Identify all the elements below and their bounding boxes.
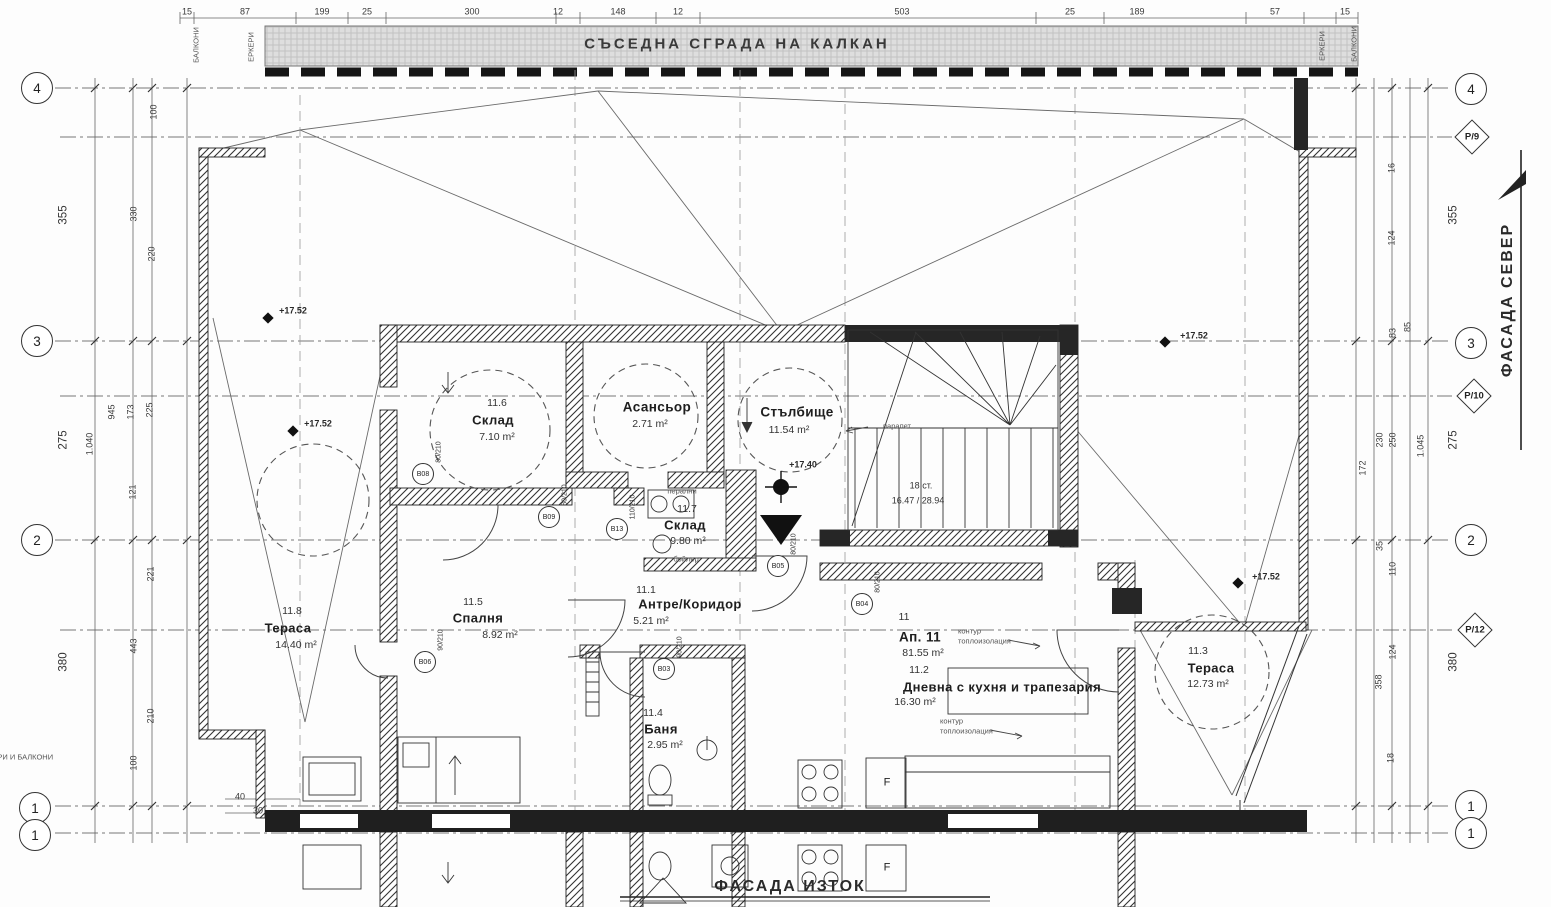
dimension-label: 173 <box>127 404 136 419</box>
annotation-insulation-1b: топлоизолация <box>958 637 1011 646</box>
room-terrace-west-num: 11.8 <box>282 606 302 617</box>
room-living-area: 16.30 m² <box>894 697 935 708</box>
grid-bubble-2-right: 2 <box>1455 524 1487 556</box>
apartment-area: 81.55 m² <box>902 648 943 659</box>
dimension-label: 189 <box>1129 8 1144 17</box>
dimension-label: 443 <box>130 638 139 653</box>
dimension-label: 275 <box>58 430 70 449</box>
fridge-label: F <box>884 778 891 789</box>
annotation-balconies-left: БАЛКОНИ <box>192 27 200 63</box>
dimension-label: 380 <box>1448 652 1460 671</box>
room-living-name: Дневна с кухня и трапезария <box>903 681 1101 694</box>
room-terrace-east-name: Тераса <box>1188 662 1235 675</box>
door-size-label: 80/210 <box>562 484 569 505</box>
apartment-sub-num: 11 <box>899 612 910 623</box>
annotation-balconies-right: БАЛКОНИ <box>1350 26 1358 62</box>
room-bedroom-num: 11.5 <box>463 597 483 608</box>
dimension-label: 121 <box>129 484 138 499</box>
stairs-rail-note: парапет <box>883 422 911 430</box>
door-tag-В06: В06 <box>414 651 436 673</box>
grid-bubble-1b-right: 1 <box>1455 817 1487 849</box>
room-terrace-east-num: 11.3 <box>1188 646 1208 657</box>
dimension-label: 12 <box>553 8 563 17</box>
room-hall-area: 5.21 m² <box>633 616 669 627</box>
dimension-label: 57 <box>1270 8 1280 17</box>
dimension-label: 124 <box>1389 644 1398 659</box>
door-size-label: 90/210 <box>438 629 445 650</box>
room-bath-num: 11.4 <box>643 708 663 719</box>
grid-bubble-2-left: 2 <box>21 524 53 556</box>
grid-bubble-4-left: 4 <box>21 72 53 104</box>
room-terrace-east-area: 12.73 m² <box>1187 679 1228 690</box>
dimension-label: 87 <box>240 8 250 17</box>
dimension-label: 35 <box>1376 541 1385 551</box>
fridge-label: F <box>884 863 891 874</box>
grid-bubble-1b-left: 1 <box>19 819 51 851</box>
grid-bubble-4-right: 4 <box>1455 73 1487 105</box>
dimension-label: 100 <box>150 104 159 119</box>
dimension-label: 40 <box>235 793 245 802</box>
banner-title: СЪСЕДНА СГРАДА НА КАЛКАН <box>584 37 889 52</box>
dimension-label: 210 <box>147 708 156 723</box>
note-boiler: бойлер <box>673 555 698 563</box>
room-terrace-west-name: Тераса <box>265 622 312 635</box>
room-storage-b-name: Склад <box>664 519 706 532</box>
room-storage-a-num: 11.6 <box>487 398 507 409</box>
door-tag-В09: В09 <box>538 506 560 528</box>
apartment-label: Ап. 11 <box>899 630 941 644</box>
dimension-label: 25 <box>1065 8 1075 17</box>
door-tag-В13: В13 <box>606 518 628 540</box>
dimension-label: 1.045 <box>1417 435 1426 458</box>
room-terrace-west-area: 14.40 m² <box>275 640 316 651</box>
room-stairwell-name: Стълбище <box>760 405 833 419</box>
door-tag-В08: В08 <box>412 463 434 485</box>
dimension-label: 83 <box>1389 328 1398 338</box>
axis-diamond-p9-label: P/9 <box>1465 132 1479 142</box>
room-bath-area: 2.95 m² <box>647 740 683 751</box>
room-living-num: 11.2 <box>909 665 929 676</box>
room-bath-name: Баня <box>644 723 678 736</box>
dimension-label: 25 <box>362 8 372 17</box>
label-overlay: СЪСЕДНА СГРАДА НА КАЛКАН ФАСАДА СЕВЕР ФА… <box>0 0 1551 907</box>
dimension-label: 380 <box>58 652 70 671</box>
dimension-label: 110 <box>1389 562 1398 576</box>
door-size-label: 80/210 <box>875 571 882 592</box>
room-stairwell-area: 11.54 m² <box>769 425 810 436</box>
dimension-label: 30 <box>253 807 263 816</box>
axis-diamond-p10-label: P/10 <box>1464 391 1484 401</box>
room-storage-b-num: 11.7 <box>677 504 697 515</box>
dimension-label: 172 <box>1359 460 1368 475</box>
level-mark: +17.40 <box>789 461 817 470</box>
note-washers: перални <box>667 487 696 495</box>
facade-east-label: ФАСАДА ИЗТОК <box>714 879 866 895</box>
dimension-label: 275 <box>1448 430 1460 449</box>
dimension-label: 330 <box>130 206 139 221</box>
room-elevator-name: Асансьор <box>623 400 691 414</box>
dimension-label: 12 <box>673 8 683 17</box>
level-mark: +17.52 <box>279 307 307 316</box>
room-storage-a-area: 7.10 m² <box>479 432 515 443</box>
room-storage-a-name: Склад <box>472 414 514 427</box>
door-size-label: 80/210 <box>791 533 798 554</box>
annotation-insulation-2b: топлоизолация <box>940 727 993 736</box>
dimension-label: 945 <box>108 404 117 419</box>
floor-plan-sheet: СЪСЕДНА СГРАДА НА КАЛКАН ФАСАДА СЕВЕР ФА… <box>0 0 1551 907</box>
dimension-label: 15 <box>182 8 192 17</box>
dimension-label: 18 <box>1387 753 1396 763</box>
room-storage-b-area: 9.80 m² <box>670 536 706 547</box>
stairs-riser-tread: 16.47 / 28.94 <box>892 497 945 506</box>
stairs-step-count: 18 ст. <box>910 482 933 491</box>
door-size-label: 110/210 <box>630 495 637 520</box>
facade-north-label: ФАСАДА СЕВЕР <box>1500 223 1516 377</box>
room-bedroom-name: Спалня <box>453 612 504 625</box>
dimension-label: 300 <box>464 8 479 17</box>
dimension-label: 221 <box>147 566 156 581</box>
dimension-label: 355 <box>1448 205 1460 224</box>
door-tag-В05: В05 <box>767 555 789 577</box>
room-bedroom-area: 8.92 m² <box>482 630 518 641</box>
dimension-label: 503 <box>894 8 909 17</box>
room-elevator-area: 2.71 m² <box>632 419 668 430</box>
dimension-label: 225 <box>146 402 155 417</box>
dimension-label: 16 <box>1388 163 1397 173</box>
annotation-insulation-1: контур <box>958 627 981 636</box>
grid-bubble-3-right: 3 <box>1455 327 1487 359</box>
dimension-label: 85 <box>1404 322 1413 332</box>
dimension-label: 220 <box>148 246 157 261</box>
door-size-label: 90/210 <box>677 636 684 657</box>
dimension-label: 100 <box>130 755 139 770</box>
level-mark: +17.52 <box>1252 573 1280 582</box>
dimension-label: 355 <box>58 205 70 224</box>
dimension-label: 358 <box>1375 674 1384 689</box>
dimension-label: 15 <box>1340 8 1350 17</box>
dimension-label: 230 <box>1376 432 1385 447</box>
door-tag-В03: В03 <box>653 658 675 680</box>
annotation-bays-right: ЕРКЕРИ <box>1318 31 1326 61</box>
door-size-label: 80/210 <box>436 441 443 462</box>
dimension-label: 1.040 <box>86 433 95 456</box>
dimension-label: 148 <box>610 8 625 17</box>
axis-diamond-p12-label: P/12 <box>1465 625 1485 635</box>
door-tag-В04: В04 <box>851 593 873 615</box>
grid-bubble-3-left: 3 <box>21 325 53 357</box>
dimension-label: 250 <box>1389 432 1398 447</box>
level-mark: +17.52 <box>304 420 332 429</box>
dimension-label: 199 <box>314 8 329 17</box>
annotation-bays-balconies: ЕРКЕРИ И БАЛКОНИ <box>0 753 53 762</box>
room-hall-name: Антре/Коридор <box>638 598 742 611</box>
annotation-bays-left: ЕРКЕРИ <box>247 32 255 62</box>
level-mark: +17.52 <box>1180 332 1208 341</box>
annotation-insulation-2: контур <box>940 717 963 726</box>
dimension-label: 124 <box>1388 230 1397 245</box>
room-hall-num: 11.1 <box>636 585 656 596</box>
